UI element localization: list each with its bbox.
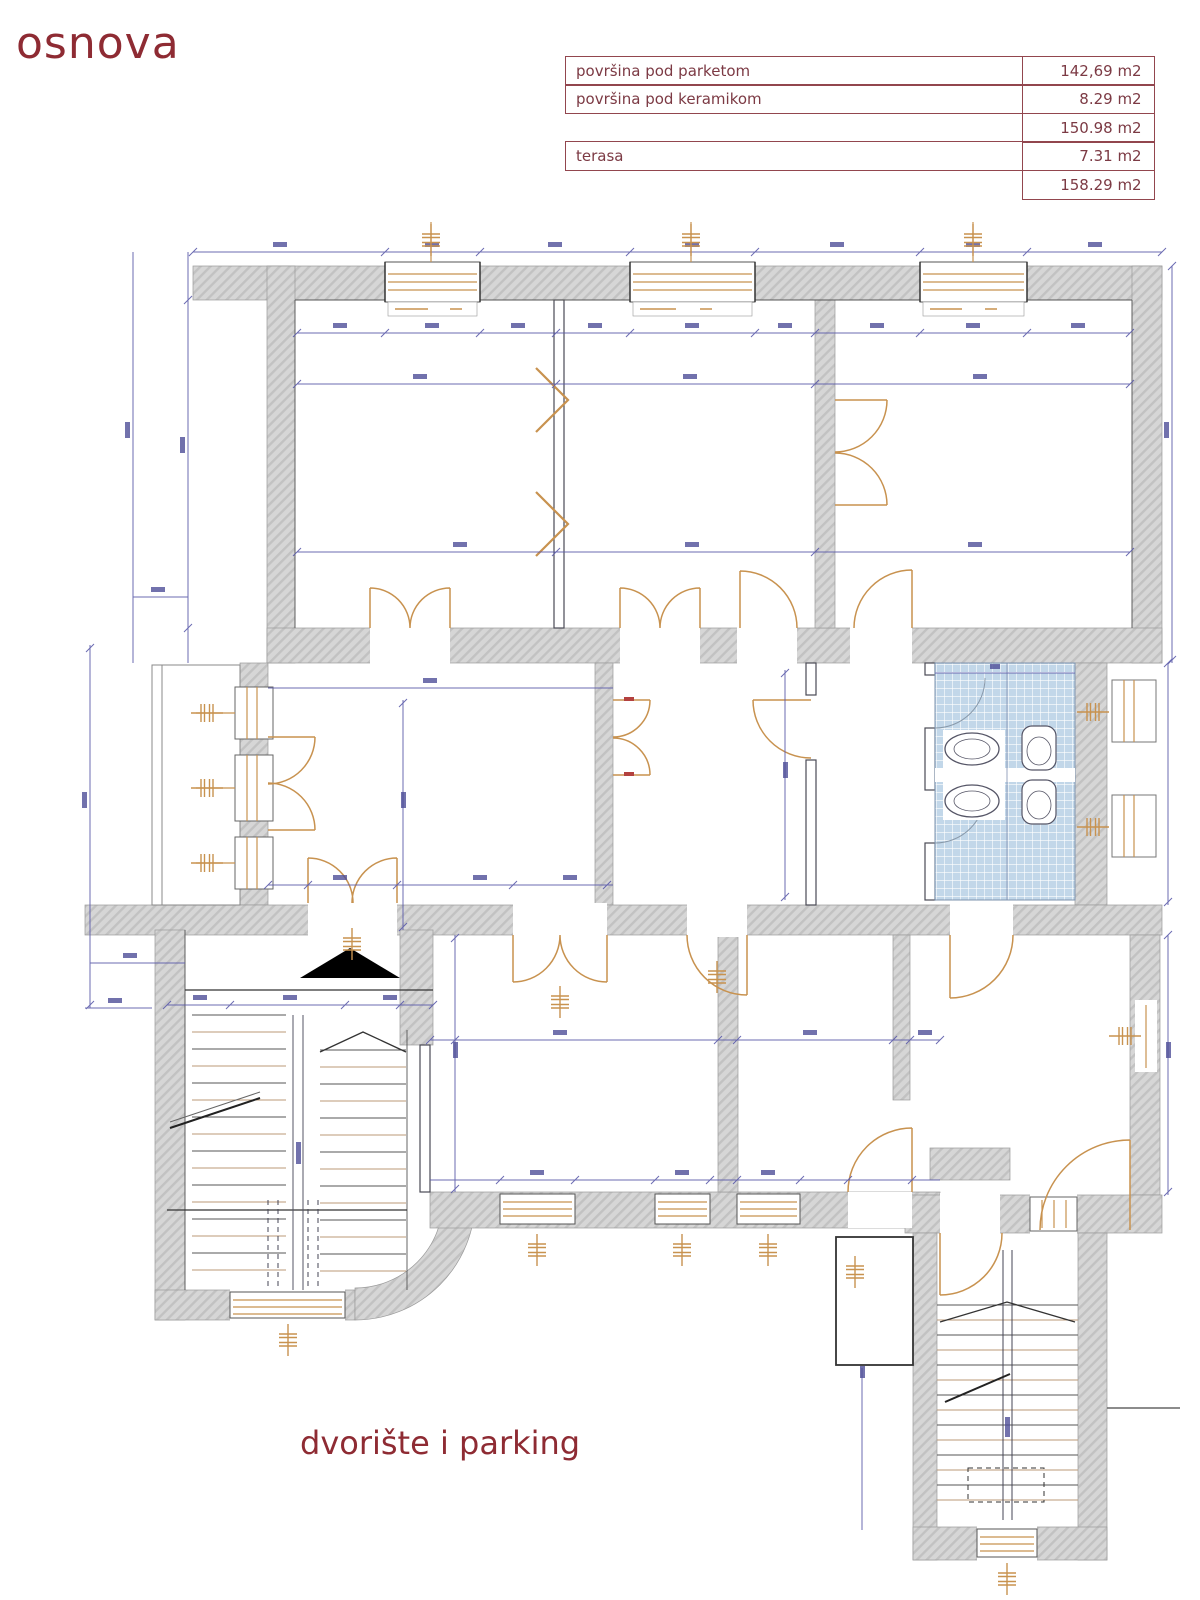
floor-plan-drawing xyxy=(0,0,1200,1600)
terrace xyxy=(152,665,240,905)
entrance-arrow xyxy=(300,948,400,978)
staircase-main xyxy=(170,1015,406,1290)
door-accents xyxy=(624,697,634,776)
floor-plan-page: osnova površina pod parketom 142,69 m2 p… xyxy=(0,0,1200,1600)
bathroom xyxy=(935,663,1075,900)
yard-caption: dvorište i parking xyxy=(300,1424,580,1462)
staircase-back xyxy=(937,1250,1078,1520)
